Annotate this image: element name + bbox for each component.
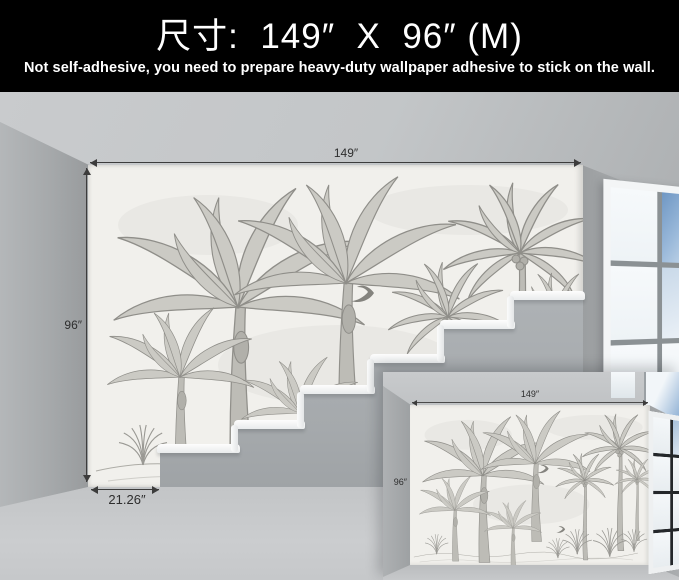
inset-height-dimension-label: 96″ [386,477,407,487]
inset-tropical-mural-artwork [410,405,650,565]
inset-window-pane [653,531,670,568]
height-dimension-label: 96″ [52,318,82,332]
stair-tread [510,291,585,300]
stair-edge [437,325,444,362]
stair-tread [300,385,375,394]
inset-width-dimension-line [412,402,648,403]
inset-window-pane [653,417,670,454]
window-pane-sky [662,192,679,264]
strip-dimension-line [91,489,159,490]
stair-tread [157,444,240,453]
stair-edge [297,392,304,428]
adhesive-note: Not self-adhesive, you need to prepare h… [0,60,679,76]
room-scene: 149″ 96″ 21.26″ [0,92,679,580]
stair-edge [507,296,514,328]
width-dimension-line [90,162,581,163]
window-pane [662,268,679,338]
inset-window-pane [673,457,679,491]
inset-window-pane [673,530,679,565]
width-dimension-label: 149″ [300,146,392,160]
stair-edge [231,425,238,452]
stair-tread [440,320,515,329]
stair-tread [234,420,305,429]
inset-window-pane [653,456,670,491]
window-pane [611,266,657,340]
height-dimension-line [86,168,87,482]
inset-window [648,411,679,575]
size-title: 尺寸: 149″ X 96″ (M) [0,8,679,59]
inset-wallpaper-mural [410,405,650,565]
inset-window-pane [673,420,679,455]
inset-window-pane-grid [653,417,679,568]
inset-window-pane [653,494,670,529]
inset-window-pane [673,494,679,528]
inset-background-window [611,372,635,398]
inset-preview: 149″ 96″ [383,372,679,580]
window-pane [611,187,657,262]
stair-tread [370,354,445,363]
inset-width-dimension-label: 149″ [483,389,577,399]
product-size-image: 尺寸: 149″ X 96″ (M) Not self-adhesive, yo… [0,0,679,580]
page-header: 尺寸: 149″ X 96″ (M) Not self-adhesive, yo… [0,0,679,92]
stair-edge [367,359,374,393]
strip-dimension-label: 21.26″ [92,492,162,507]
inset-left-wall [383,372,411,580]
